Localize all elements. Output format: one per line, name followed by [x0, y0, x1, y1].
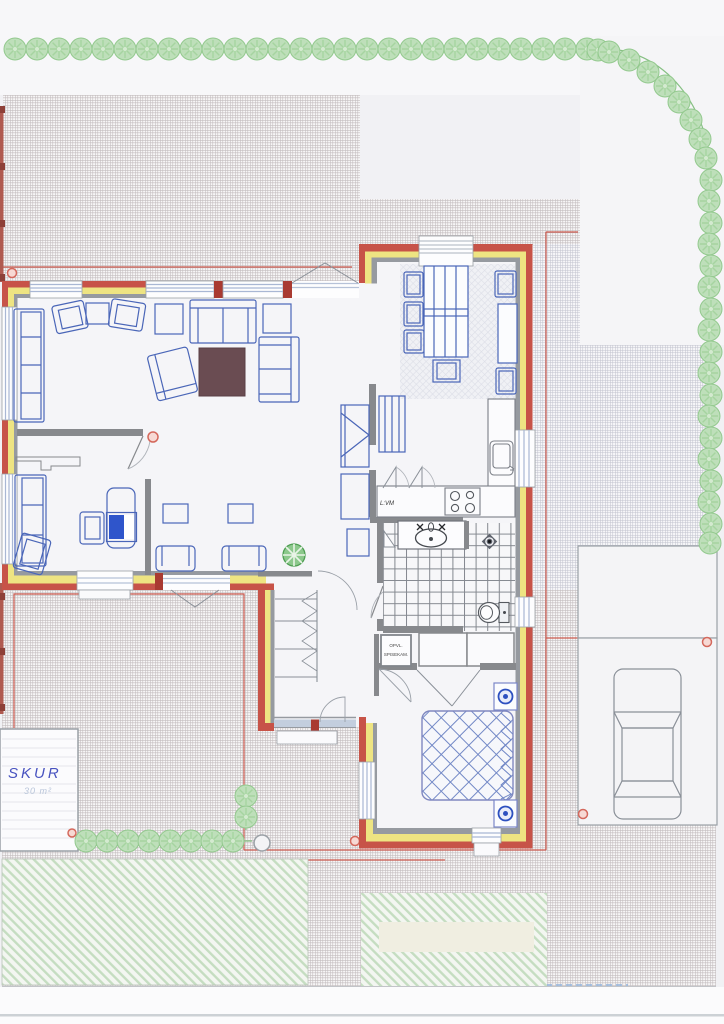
svg-text:L:VM: L:VM: [380, 501, 394, 507]
svg-text:30 m²: 30 m²: [24, 786, 52, 796]
svg-text:SPISEKAM.: SPISEKAM.: [384, 652, 408, 657]
svg-text:OPVL.: OPVL.: [389, 643, 402, 648]
svg-text:SKUR: SKUR: [8, 765, 62, 782]
